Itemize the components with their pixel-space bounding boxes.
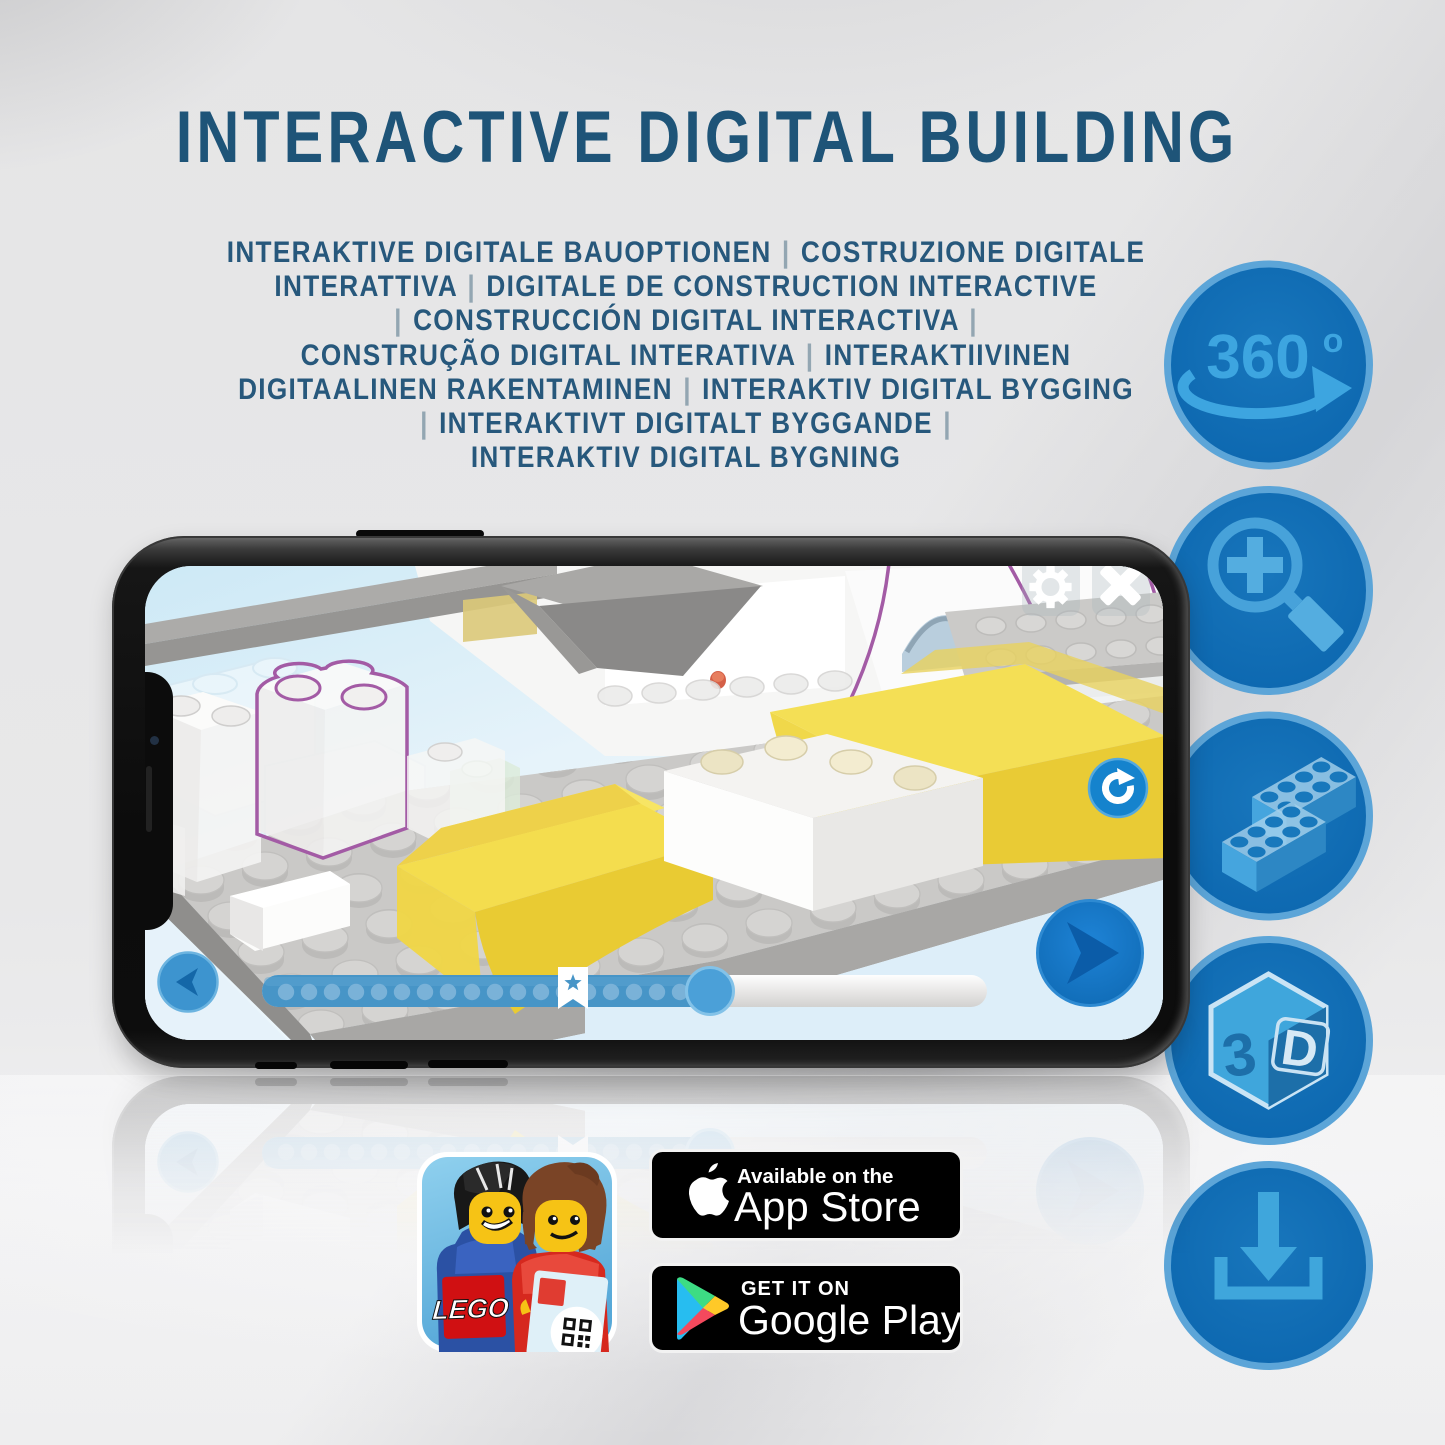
- svg-text:360: 360: [1206, 323, 1309, 392]
- svg-text:D: D: [1278, 1019, 1322, 1079]
- svg-text:LEGO: LEGO: [431, 1292, 510, 1326]
- svg-text:o: o: [1323, 322, 1344, 360]
- svg-text:App Store: App Store: [734, 1183, 921, 1230]
- svg-text:Google Play: Google Play: [738, 1297, 962, 1343]
